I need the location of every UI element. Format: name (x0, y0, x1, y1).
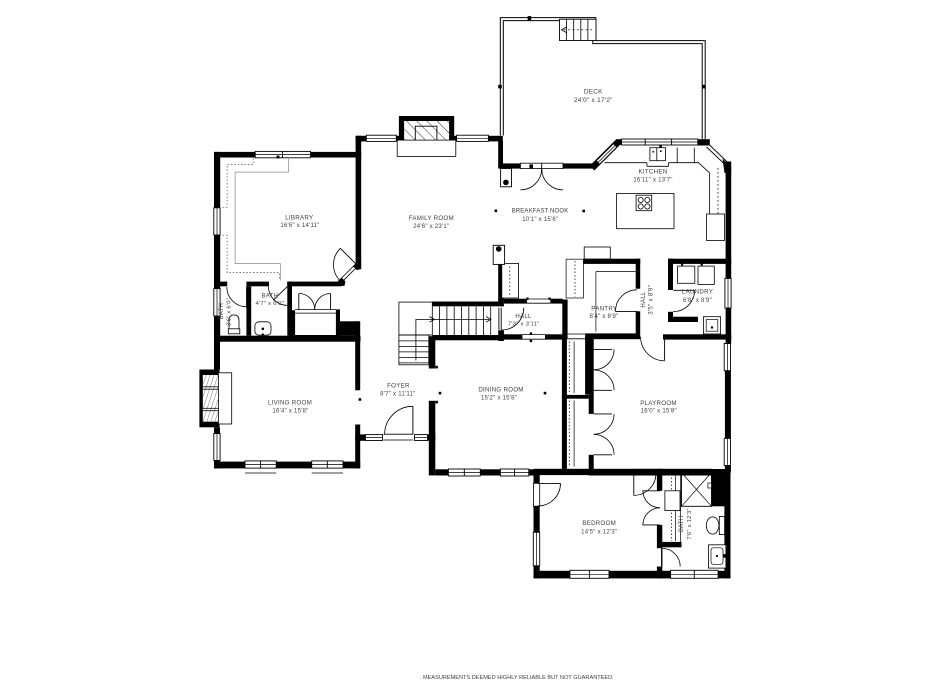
svg-text:LIVING ROOM: LIVING ROOM (268, 400, 312, 407)
svg-text:BEDROOM: BEDROOM (582, 520, 616, 527)
svg-text:HALL: HALL (640, 291, 647, 308)
svg-text:6'8" x 8'9": 6'8" x 8'9" (683, 298, 712, 304)
svg-text:PLAYROOM: PLAYROOM (640, 400, 677, 407)
svg-text:BATH: BATH (219, 303, 225, 320)
svg-text:15'2" x 15'8": 15'2" x 15'8" (481, 395, 517, 401)
svg-text:PANTRY: PANTRY (591, 306, 617, 313)
svg-text:16'11" x 13'7": 16'11" x 13'7" (633, 178, 672, 184)
svg-text:FOYER: FOYER (387, 383, 410, 390)
svg-text:3'6" x 6'0": 3'6" x 6'0" (226, 298, 232, 326)
svg-text:FAMILY ROOM: FAMILY ROOM (409, 215, 454, 222)
svg-text:16'6" x 14'11": 16'6" x 14'11" (280, 223, 319, 229)
svg-text:10'1" x 15'6": 10'1" x 15'6" (522, 217, 558, 223)
svg-text:16'0" x 15'8": 16'0" x 15'8" (641, 409, 677, 415)
svg-text:24'0" x 17'2": 24'0" x 17'2" (574, 97, 613, 104)
svg-text:7'6" x 12'3": 7'6" x 12'3" (687, 508, 693, 540)
svg-text:. MEASUREMENTS DEEMED HIGHLY R: . MEASUREMENTS DEEMED HIGHLY RELIABLE BU… (420, 675, 614, 681)
svg-text:3'5" x 8'9": 3'5" x 8'9" (648, 285, 655, 315)
svg-text:24'6" x 23'1": 24'6" x 23'1" (413, 224, 449, 230)
svg-text:LIBRARY: LIBRARY (285, 214, 313, 221)
svg-text:14'5" x 12'3": 14'5" x 12'3" (581, 530, 617, 536)
svg-text:8'4" x 8'9": 8'4" x 8'9" (590, 314, 619, 320)
svg-text:BREAKFAST NOOK: BREAKFAST NOOK (512, 208, 569, 215)
svg-text:HALL: HALL (515, 313, 532, 320)
svg-text:BATH: BATH (679, 516, 685, 533)
svg-text:16'4" x 15'8": 16'4" x 15'8" (272, 408, 308, 414)
svg-text:BATH: BATH (262, 294, 279, 300)
svg-text:8'7" x 11'11": 8'7" x 11'11" (380, 391, 415, 397)
svg-text:DINING ROOM: DINING ROOM (478, 386, 523, 393)
svg-text:4'7" x 6'0": 4'7" x 6'0" (256, 301, 285, 307)
svg-text:LAUNDRY: LAUNDRY (682, 289, 713, 296)
svg-text:DECK: DECK (584, 89, 603, 96)
svg-text:7'3" x 3'11": 7'3" x 3'11" (508, 322, 540, 328)
svg-text:KITCHEN: KITCHEN (639, 169, 668, 176)
